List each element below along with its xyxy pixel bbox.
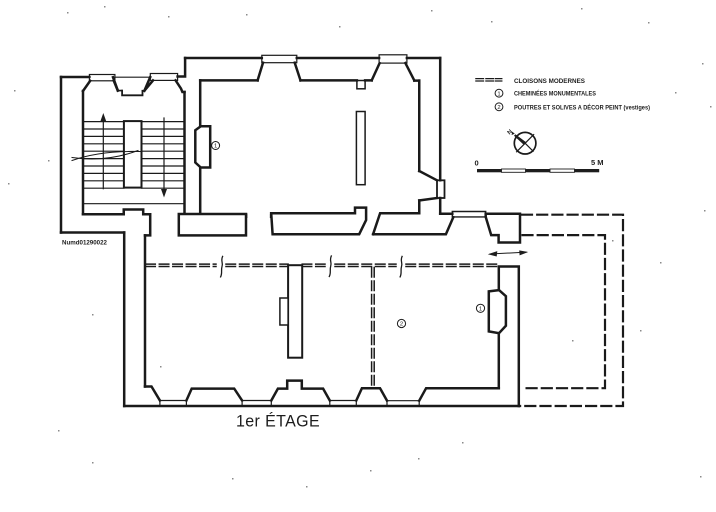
svg-text:2: 2 xyxy=(497,105,500,111)
svg-text:5 M: 5 M xyxy=(591,158,604,167)
svg-text:2: 2 xyxy=(400,322,403,328)
svg-text:0: 0 xyxy=(475,159,479,168)
svg-text:1: 1 xyxy=(214,144,217,150)
svg-text:CLOISONS MODERNES: CLOISONS MODERNES xyxy=(514,78,585,85)
svg-text:1: 1 xyxy=(497,91,500,97)
svg-text:Numd01290022: Numd01290022 xyxy=(62,240,107,247)
svg-text:1er ÉTAGE: 1er ÉTAGE xyxy=(236,412,320,431)
svg-text:CHEMINÉES MONUMENTALES: CHEMINÉES MONUMENTALES xyxy=(514,89,596,98)
svg-text:1: 1 xyxy=(479,307,482,313)
svg-text:N: N xyxy=(507,129,514,136)
svg-text:POUTRES ET SOLIVES A DÉCOR PEI: POUTRES ET SOLIVES A DÉCOR PEINT (vestig… xyxy=(514,103,650,111)
